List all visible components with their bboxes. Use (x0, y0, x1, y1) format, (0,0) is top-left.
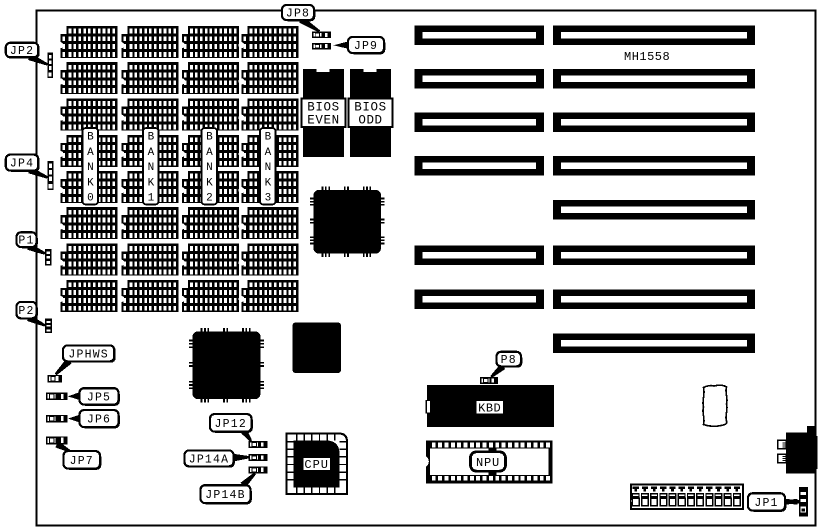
svg-text:CPU: CPU (304, 458, 329, 472)
svg-text:P2: P2 (18, 305, 34, 318)
svg-text:K: K (87, 177, 94, 189)
svg-text:1: 1 (148, 193, 155, 205)
svg-text:JPHWS: JPHWS (68, 348, 109, 361)
svg-text:A: A (87, 147, 94, 159)
svg-text:P1: P1 (18, 235, 34, 248)
svg-text:JP9: JP9 (354, 40, 378, 53)
svg-text:N: N (87, 162, 94, 174)
svg-text:MH1558: MH1558 (624, 50, 670, 64)
svg-text:3: 3 (265, 193, 272, 205)
svg-text:B: B (265, 132, 272, 144)
svg-text:0: 0 (87, 193, 94, 205)
svg-text:JP2: JP2 (10, 45, 34, 58)
svg-text:A: A (148, 147, 155, 159)
svg-text:JP5: JP5 (87, 391, 111, 404)
svg-text:B: B (87, 132, 94, 144)
svg-text:JP4: JP4 (10, 158, 34, 171)
svg-text:KBD: KBD (478, 402, 501, 416)
svg-text:P8: P8 (501, 354, 517, 367)
svg-text:A: A (206, 147, 213, 159)
svg-text:N: N (148, 162, 155, 174)
svg-text:B: B (148, 132, 155, 144)
svg-text:JP14A: JP14A (189, 453, 230, 466)
svg-text:N: N (265, 162, 272, 174)
svg-text:2: 2 (206, 193, 213, 205)
svg-text:K: K (206, 177, 213, 189)
svg-text:BIOS: BIOS (354, 101, 386, 115)
svg-text:K: K (148, 177, 155, 189)
svg-text:BIOS: BIOS (307, 101, 339, 115)
svg-text:JP8: JP8 (286, 8, 310, 21)
svg-text:K: K (265, 177, 272, 189)
svg-text:JP12: JP12 (215, 418, 247, 431)
svg-text:B: B (206, 132, 213, 144)
svg-text:EVEN: EVEN (307, 114, 339, 128)
svg-text:JP6: JP6 (87, 414, 111, 427)
svg-text:JP7: JP7 (70, 455, 94, 468)
svg-text:NPU: NPU (476, 456, 500, 470)
svg-text:N: N (206, 162, 213, 174)
svg-text:ODD: ODD (358, 114, 382, 128)
svg-text:JP1: JP1 (754, 497, 778, 510)
svg-text:A: A (265, 147, 272, 159)
svg-text:JP14B: JP14B (205, 489, 246, 502)
